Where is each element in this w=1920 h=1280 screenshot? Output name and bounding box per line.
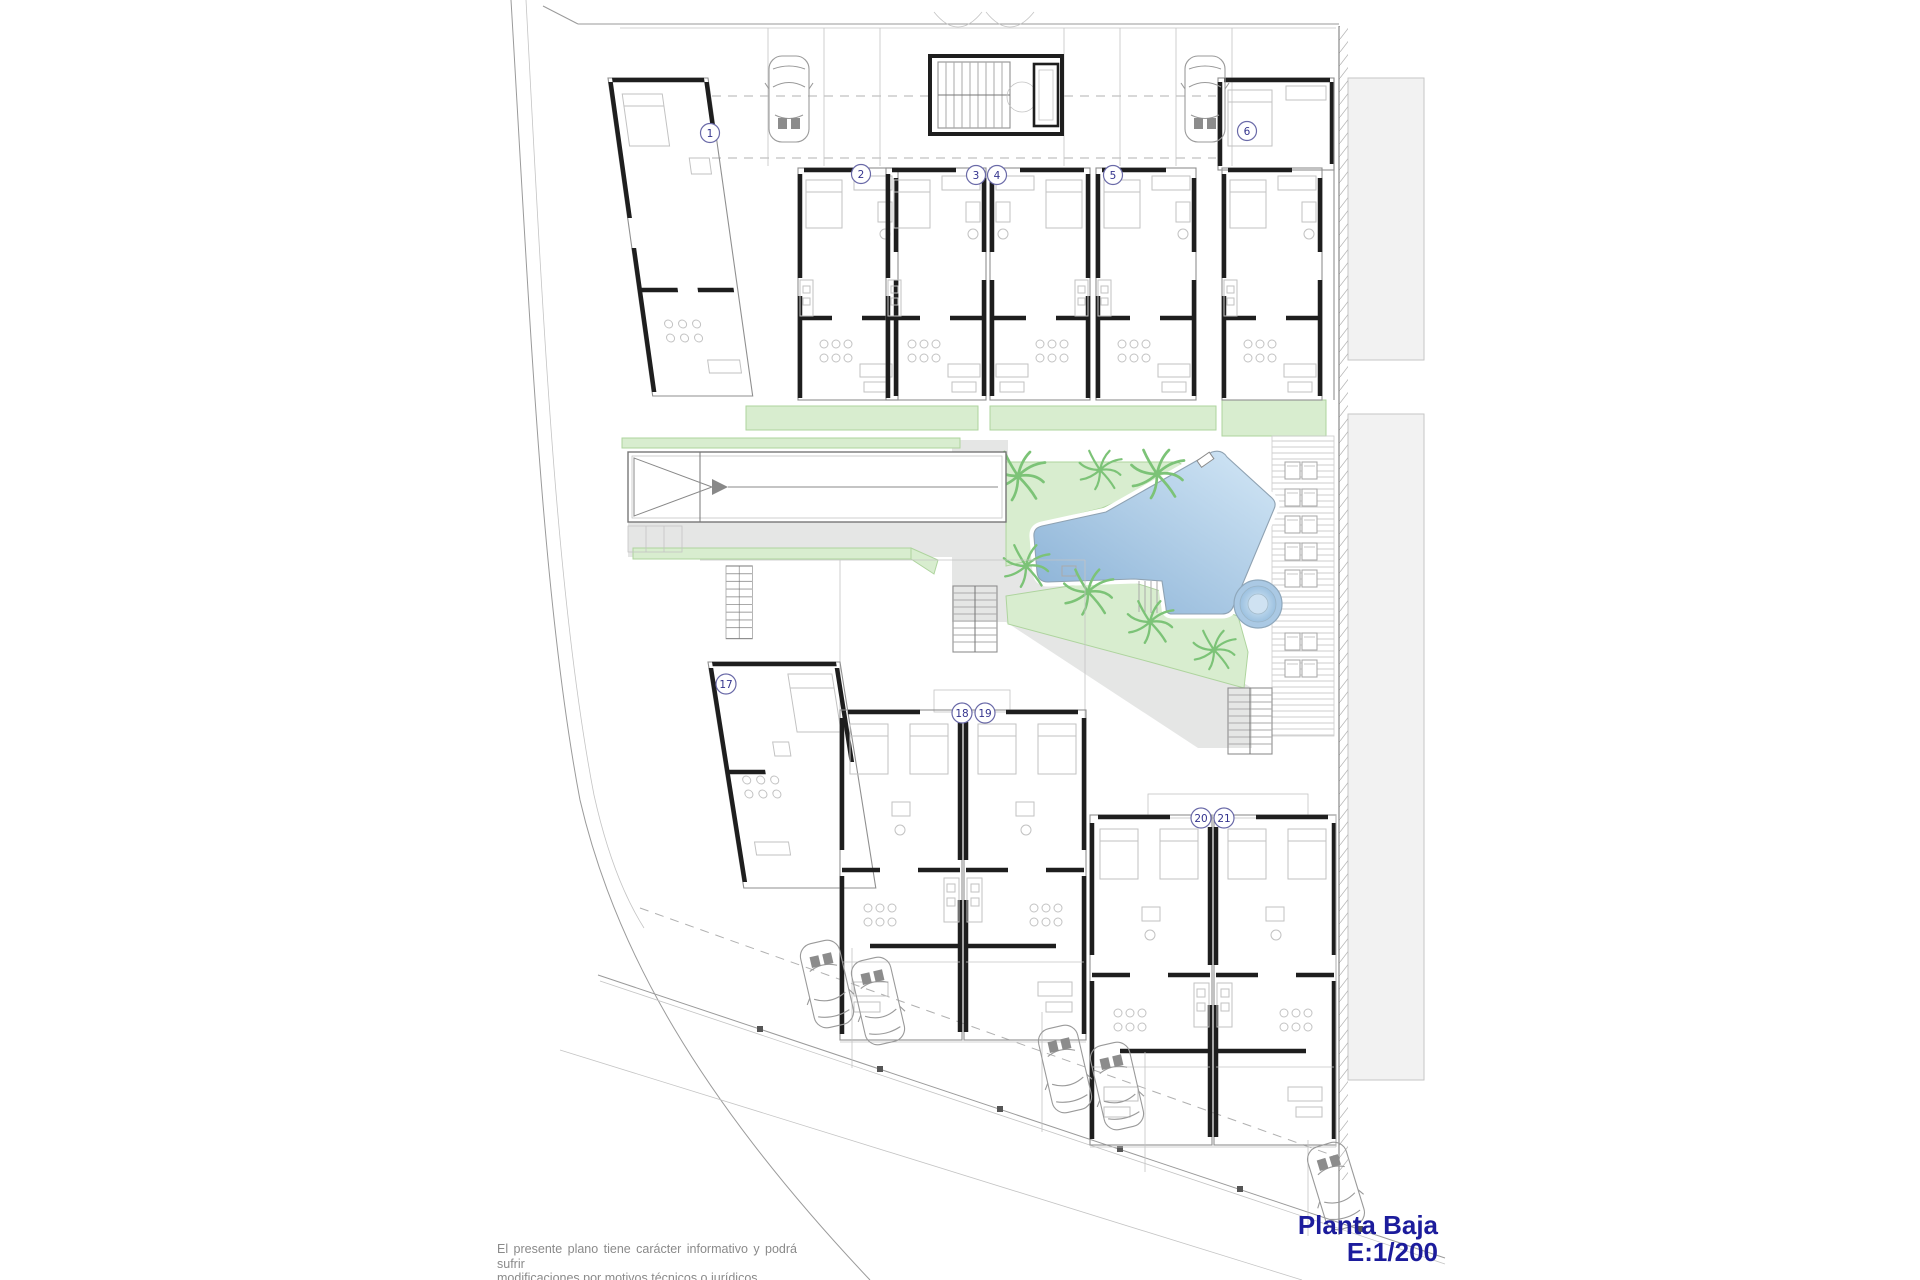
unit-5 xyxy=(1096,168,1196,400)
unit-label-19: 19 xyxy=(975,703,995,723)
unit-6 xyxy=(1218,78,1334,400)
svg-text:20: 20 xyxy=(1194,813,1207,825)
unit-label-2: 2 xyxy=(852,165,871,184)
boundary-hatch xyxy=(1339,26,1348,1180)
disclaimer-line-1: El presente plano tiene carácter informa… xyxy=(497,1242,797,1271)
unit-label-18: 18 xyxy=(952,703,972,723)
elevator xyxy=(1034,64,1058,126)
unit-17 xyxy=(708,662,876,888)
stair-core-top xyxy=(930,56,1062,134)
unit-4 xyxy=(990,168,1090,400)
disclaimer-line-2: modificaciones por motivos técnicos o ju… xyxy=(497,1271,797,1280)
unit-19 xyxy=(964,710,1086,1040)
svg-text:18: 18 xyxy=(955,708,968,720)
plan-scale: E:1/200 xyxy=(1150,1239,1438,1266)
neighbor-buildings xyxy=(1339,26,1424,1235)
car-icon xyxy=(794,937,860,1032)
unit-label-4: 4 xyxy=(988,166,1007,185)
unit-label-20: 20 xyxy=(1191,808,1211,828)
title-block: Planta Baja E:1/200 xyxy=(1150,1212,1438,1266)
jacuzzi xyxy=(1234,580,1282,628)
plan-title: Planta Baja xyxy=(1150,1212,1438,1239)
unit-label-17: 17 xyxy=(716,674,736,694)
unit-20 xyxy=(1090,815,1212,1145)
car-icon xyxy=(765,56,813,142)
unit-label-6: 6 xyxy=(1238,122,1257,141)
svg-text:6: 6 xyxy=(1244,126,1251,138)
bottom-right-block xyxy=(1090,688,1336,1147)
svg-text:17: 17 xyxy=(719,679,732,691)
unit-label-3: 3 xyxy=(967,166,986,185)
unit-1 xyxy=(608,78,753,396)
unit-2 xyxy=(798,168,898,400)
disclaimer: El presente plano tiene carácter informa… xyxy=(497,1242,797,1280)
top-apartment-block xyxy=(608,12,1334,400)
svg-text:4: 4 xyxy=(994,170,1001,182)
plan-sheet: 1 2 3 4 5 6 17 18 19 20 21 Planta Baja E… xyxy=(0,0,1920,1280)
unit-label-21: 21 xyxy=(1214,808,1234,828)
svg-text:2: 2 xyxy=(858,169,865,181)
floor-plan-drawing: 1 2 3 4 5 6 17 18 19 20 21 xyxy=(0,0,1920,1280)
unit-21 xyxy=(1214,815,1336,1145)
unit-label-1: 1 xyxy=(701,124,720,143)
svg-text:1: 1 xyxy=(707,128,714,140)
unit-3 xyxy=(886,168,986,400)
unit-label-5: 5 xyxy=(1104,166,1123,185)
svg-text:5: 5 xyxy=(1110,170,1117,182)
svg-text:19: 19 xyxy=(978,708,991,720)
unit-18 xyxy=(840,710,962,1040)
svg-text:3: 3 xyxy=(973,170,980,182)
pool-deck xyxy=(1272,436,1334,736)
svg-text:21: 21 xyxy=(1217,813,1230,825)
entry-porch xyxy=(934,690,1010,712)
stair-icon xyxy=(726,566,752,639)
